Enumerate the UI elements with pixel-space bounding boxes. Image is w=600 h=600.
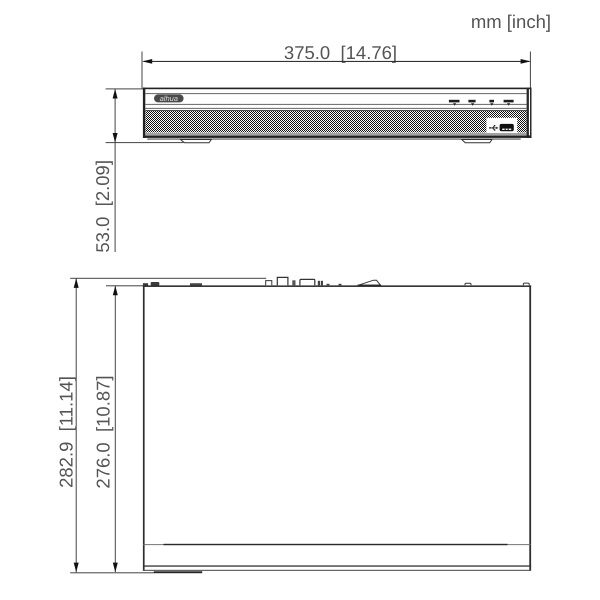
svg-text:alhua: alhua [160,94,178,103]
svg-text:53.0 [2.09]: 53.0 [2.09] [92,160,113,253]
svg-text:282.9 [11.14]: 282.9 [11.14] [56,376,77,488]
svg-text:mm [inch]: mm [inch] [471,11,551,32]
svg-text:276.0 [10.87]: 276.0 [10.87] [92,375,113,488]
svg-text:375.0 [14.76]: 375.0 [14.76] [284,42,397,63]
